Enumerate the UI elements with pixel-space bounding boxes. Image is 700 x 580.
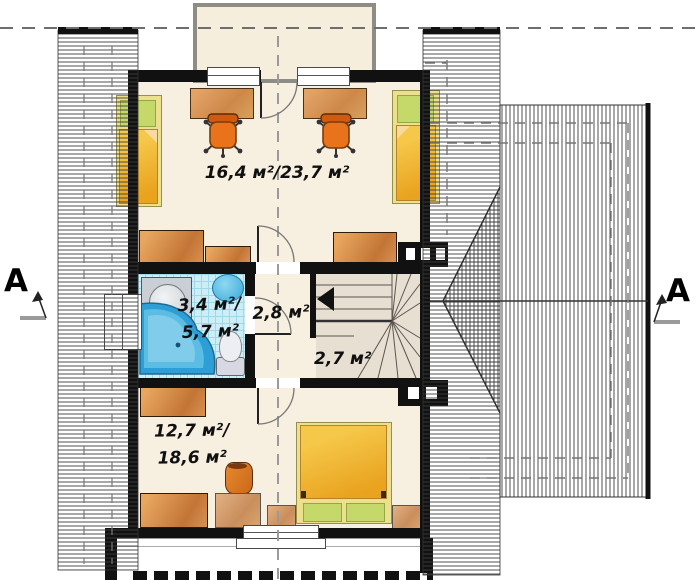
office-chair-icon [201,112,245,158]
nightstand-icon [392,505,421,529]
flue-duct [408,387,419,399]
area-label-hall: 2,8 м² [250,301,313,325]
blanket-fold [144,130,157,143]
chimney-flue-icon [398,380,448,406]
area-label-stairs: 2,7 м² [314,348,370,370]
flue-duct [436,248,445,260]
bed-right-icon [392,90,440,204]
area-label-top-room: 16,4 м²/23,7 м² [197,162,357,184]
area-label-bottom-room-line2: 18,6 м² [146,444,238,473]
area-label-bathroom-line1: 3,4 м²/ [167,291,252,321]
double-bed-icon [296,422,392,524]
bed-corner-notch [381,491,386,498]
wall [128,70,207,82]
window-bathroom [104,294,142,350]
area-label-bathroom-line2: 5,7 м² [168,318,253,348]
area-label-bottom-room: 12,7 м²/ 18,6 м² [146,417,239,473]
pillow-icon [303,503,342,522]
bed-left-icon [116,95,162,207]
wardrobe-icon [333,232,397,264]
window-sill [236,538,326,549]
flue-duct [426,387,437,399]
wardrobe-icon [139,230,204,264]
flue-duct [406,248,415,260]
window-glass-line [298,75,349,76]
blanket-icon [119,129,158,204]
pillow-icon [120,100,156,127]
terrace-wall-left [105,538,117,580]
window-top-left [207,67,260,86]
office-chair-icon [314,112,358,158]
hall-floor [255,274,316,378]
blanket-icon [300,425,387,499]
wall [128,262,256,274]
wall-bottom [105,528,243,538]
area-label-bottom-room-line1: 12,7 м²/ [146,417,238,446]
window-glass-line [244,532,318,533]
wall-right [420,82,430,538]
window-glass-line [208,75,259,76]
chimney-flue-icon [398,242,448,267]
flue-duct [421,248,430,260]
blanket-fold [397,126,410,139]
window-glass-line [122,295,123,349]
seat-table-icon [215,493,261,528]
dresser-icon [140,385,206,417]
roof-plane-right [423,27,648,575]
attic-floor-plan: 16,4 м²/23,7 м² 3,4 м²/ 5,7 м² 2,8 м² 2,… [0,0,700,580]
wall [128,378,256,388]
bed-corner-notch [301,491,306,498]
wall [347,70,430,82]
cut-hatch-band [133,571,433,580]
chest-icon [140,493,208,528]
area-label-bathroom: 3,4 м²/ 5,7 м² [167,291,253,348]
window-top-right [297,67,350,86]
wall-bottom [317,528,430,538]
terrace-wall-right [420,538,433,573]
section-marker-left: A [4,266,28,297]
section-marker-right: A [666,276,690,307]
blanket-icon [396,125,436,201]
roof-edge-dashed [425,60,628,478]
pillow-icon [346,503,385,522]
